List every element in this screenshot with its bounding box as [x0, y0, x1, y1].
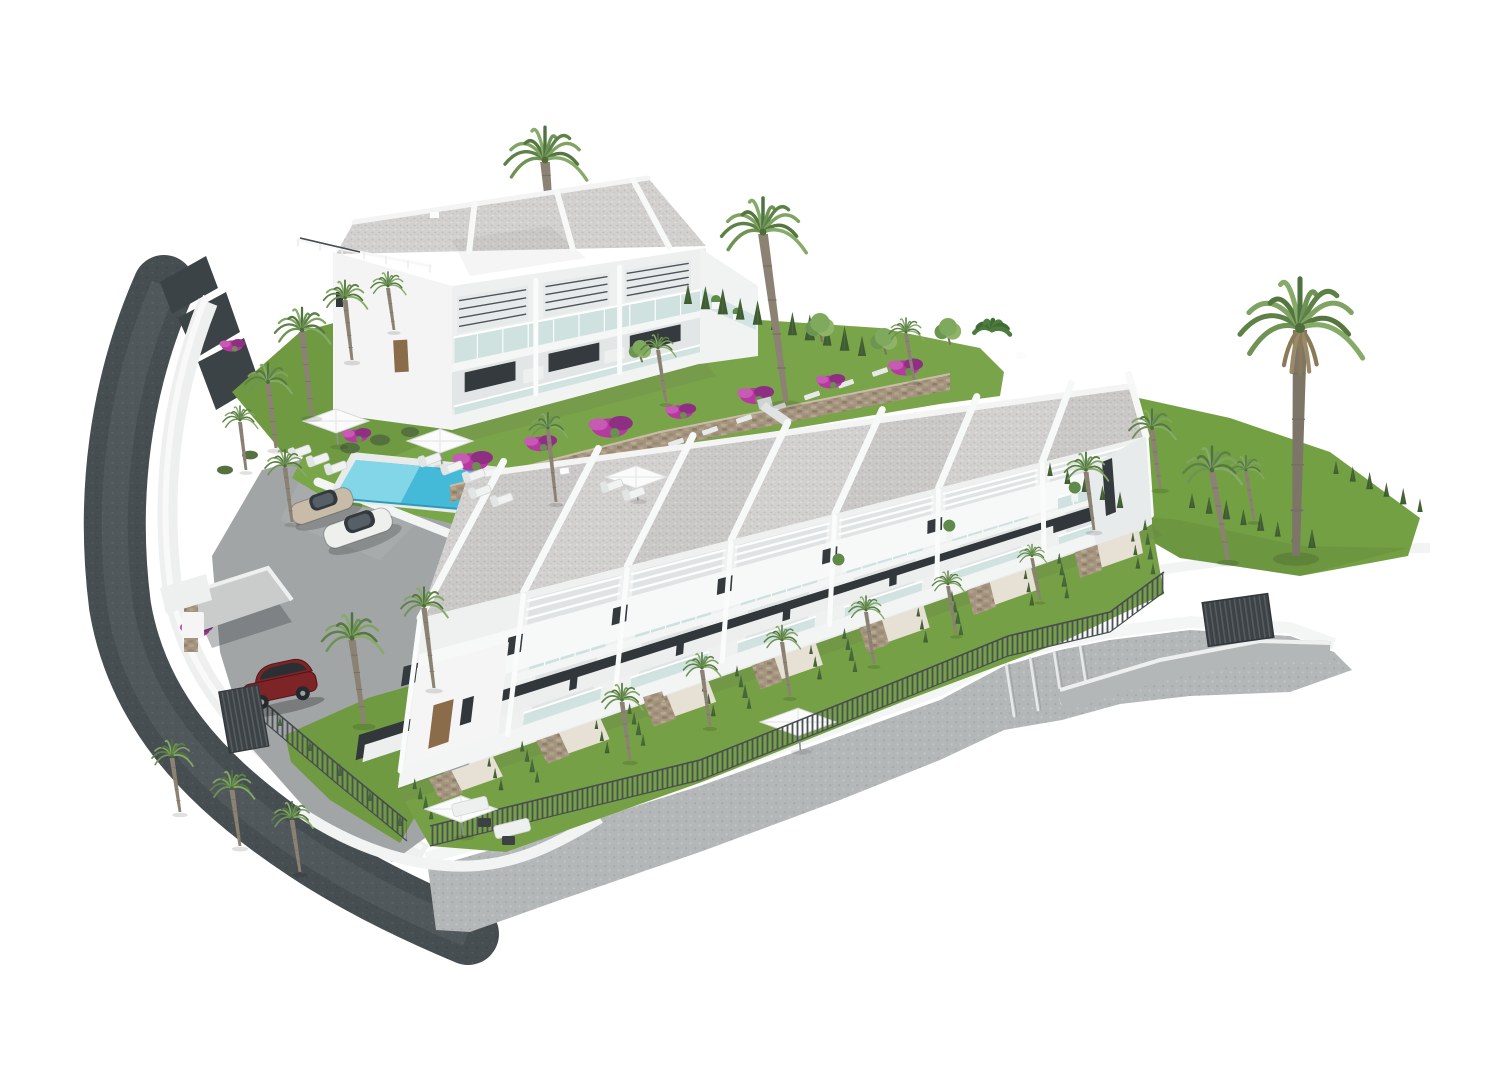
architectural-render: [0, 0, 1491, 1080]
banana-plant: [974, 320, 1010, 334]
render-canvas: [0, 0, 1491, 1080]
gate: [1202, 594, 1273, 647]
